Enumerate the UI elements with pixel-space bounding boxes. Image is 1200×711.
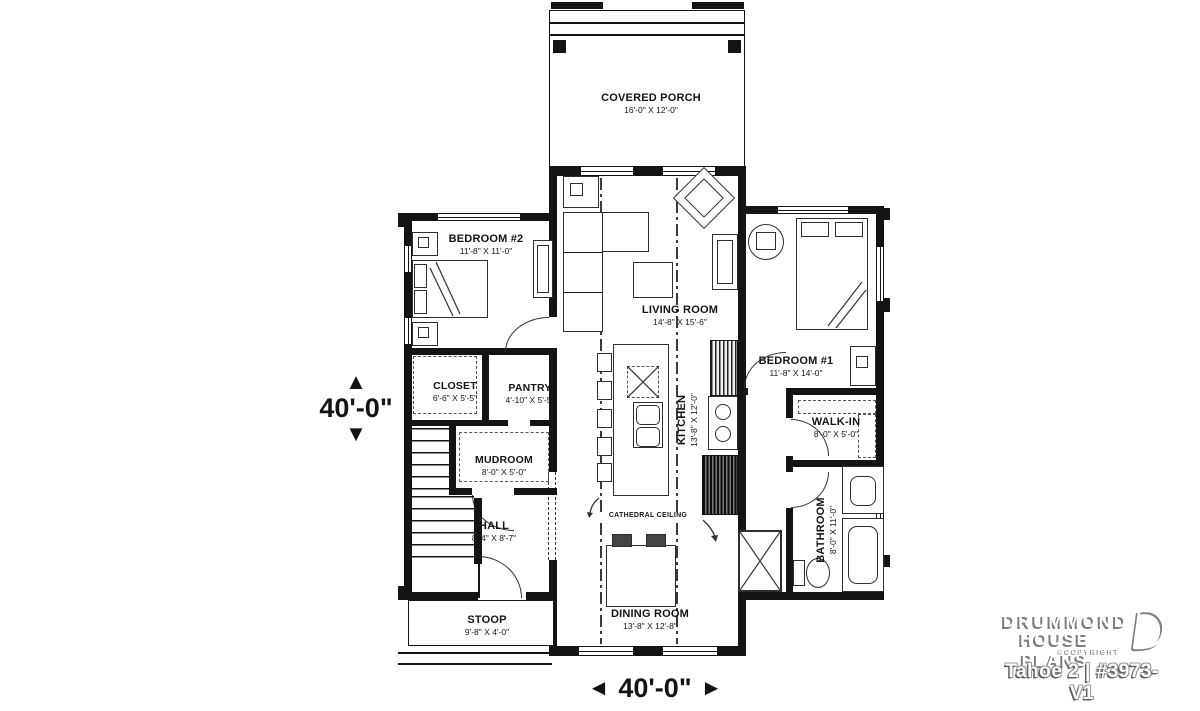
dimension-vertical-label: 40'-0" xyxy=(319,393,392,423)
wall xyxy=(530,420,557,426)
arrow-right-icon: ► xyxy=(701,678,723,698)
leader-arrow-icon xyxy=(584,496,604,520)
armchair-seat xyxy=(684,178,724,218)
room-label-bedroom-1: BEDROOM #111'-8" X 14'-0" xyxy=(736,355,856,378)
wall xyxy=(876,206,884,247)
arrow-down-icon: ▼ xyxy=(310,424,402,444)
room-label-pantry: PANTRY4'-10" X 5'-5" xyxy=(489,382,571,405)
room-label-stoop: STOOP9'-8" X 4'-0" xyxy=(447,614,527,637)
wall xyxy=(786,395,793,418)
wall xyxy=(738,166,746,214)
wall xyxy=(404,213,412,246)
wall xyxy=(549,560,557,600)
blanket-fold xyxy=(796,278,868,330)
wall xyxy=(514,488,557,495)
wall xyxy=(786,508,793,600)
stool xyxy=(597,353,612,372)
stool xyxy=(597,409,612,428)
kitchen-counter xyxy=(710,340,738,396)
stoop-step xyxy=(398,663,552,665)
burner xyxy=(715,404,731,420)
burner xyxy=(715,426,731,442)
toilet-tank xyxy=(793,560,805,586)
window xyxy=(438,213,520,221)
room-label-kitchen: KITCHEN13'-8" X 12'-0" xyxy=(676,375,700,465)
dining-chair xyxy=(646,534,666,547)
door-arc xyxy=(505,317,549,352)
sofa-cushion-line xyxy=(563,252,603,253)
room-label-living-room: LIVING ROOM14'-8" X 15'-6" xyxy=(620,304,740,327)
wall xyxy=(738,388,748,395)
porch-band-line xyxy=(549,34,745,36)
vanity-sink xyxy=(850,476,876,506)
window xyxy=(404,246,412,272)
wall xyxy=(404,420,508,426)
dimension-horizontal-label: 40'-0" xyxy=(618,672,691,704)
chair-seat xyxy=(756,232,776,250)
cased-opening xyxy=(555,472,556,560)
wall xyxy=(404,344,412,600)
dimension-vertical: ▲ 40'-0" ▼ xyxy=(310,372,402,444)
wall xyxy=(549,352,557,472)
stool xyxy=(597,381,612,400)
stool xyxy=(597,437,612,456)
drummond-logo-icon xyxy=(1118,606,1168,652)
roof-edge xyxy=(551,2,603,9)
cathedral-ceiling-note: CATHEDRAL CEILING xyxy=(600,512,696,520)
room-label-covered-porch: COVERED PORCH16'-0" X 12'-0" xyxy=(591,92,711,115)
leader-arrow-icon xyxy=(700,518,720,544)
window xyxy=(404,318,412,344)
walkin-shelves xyxy=(798,400,876,414)
arrow-up-icon: ▲ xyxy=(310,372,402,392)
wall xyxy=(449,426,456,494)
wall xyxy=(404,592,478,600)
brand-plan-name: Tahoe 2 | #3973-V1 xyxy=(998,661,1166,705)
wall-pier xyxy=(884,208,890,220)
wall xyxy=(633,166,663,176)
stoop-step xyxy=(398,652,552,654)
wall xyxy=(449,488,472,495)
skylight-x xyxy=(627,366,659,398)
console-inner xyxy=(717,240,733,284)
roof-edge xyxy=(692,2,744,9)
pillow xyxy=(801,222,829,237)
pillow xyxy=(835,222,863,237)
bathtub-inner xyxy=(848,526,878,584)
wall xyxy=(738,600,746,656)
room-label-dining-room: DINING ROOM13'-8" X 12'-8" xyxy=(590,608,710,631)
wall xyxy=(549,166,557,221)
porch-post xyxy=(728,40,741,53)
brand-copyright: ©COPYRIGHT xyxy=(1058,649,1120,656)
stool xyxy=(597,463,612,482)
door-arc xyxy=(478,556,522,598)
armchair xyxy=(673,167,735,229)
room-label-bedroom-2: BEDROOM #211'-8" X 11'-0" xyxy=(426,233,546,256)
wall xyxy=(633,646,663,656)
cased-opening xyxy=(548,472,549,560)
arrow-left-icon: ◄ xyxy=(588,678,610,698)
dining-table xyxy=(606,545,676,607)
room-label-walk-in: WALK-IN8'-0" X 5'-0" xyxy=(796,416,876,439)
room-label-bathroom: BATHROOM8'-0" X 11'-0" xyxy=(815,485,839,575)
coffee-table xyxy=(633,262,673,298)
dining-chair xyxy=(612,534,632,547)
sink-bowl xyxy=(636,405,660,425)
wall-pier xyxy=(884,298,890,312)
window xyxy=(876,247,884,301)
window xyxy=(663,646,717,656)
window xyxy=(579,646,633,656)
utility-cabinet xyxy=(738,530,782,592)
window xyxy=(778,206,848,214)
window xyxy=(581,166,633,176)
porch-post xyxy=(553,40,566,53)
wall xyxy=(786,388,884,395)
lamp xyxy=(570,183,583,196)
utility-x xyxy=(740,532,780,590)
room-label-mudroom: MUDROOM8'-0" X 5'-0" xyxy=(464,454,544,477)
lamp xyxy=(418,327,429,338)
blanket-fold xyxy=(426,260,466,318)
sofa xyxy=(563,212,603,332)
dimension-horizontal: ◄ 40'-0" ► xyxy=(580,672,730,704)
room-label-closet: CLOSET6'-6" X 5'-5" xyxy=(415,380,495,403)
wall xyxy=(404,272,412,318)
wall-pier xyxy=(884,555,890,567)
sink-bowl xyxy=(636,427,660,447)
refrigerator xyxy=(702,455,738,515)
lamp xyxy=(856,356,868,368)
floor-plan-canvas: COVERED PORCH16'-0" X 12'-0" BEDROOM #21… xyxy=(0,0,1200,711)
room-label-hall: HALL8'-4" X 8'-7" xyxy=(454,520,534,543)
sofa-cushion-line xyxy=(563,292,603,293)
staircase xyxy=(412,428,450,492)
porch-band-line xyxy=(549,22,745,24)
wall-pier xyxy=(398,213,404,227)
